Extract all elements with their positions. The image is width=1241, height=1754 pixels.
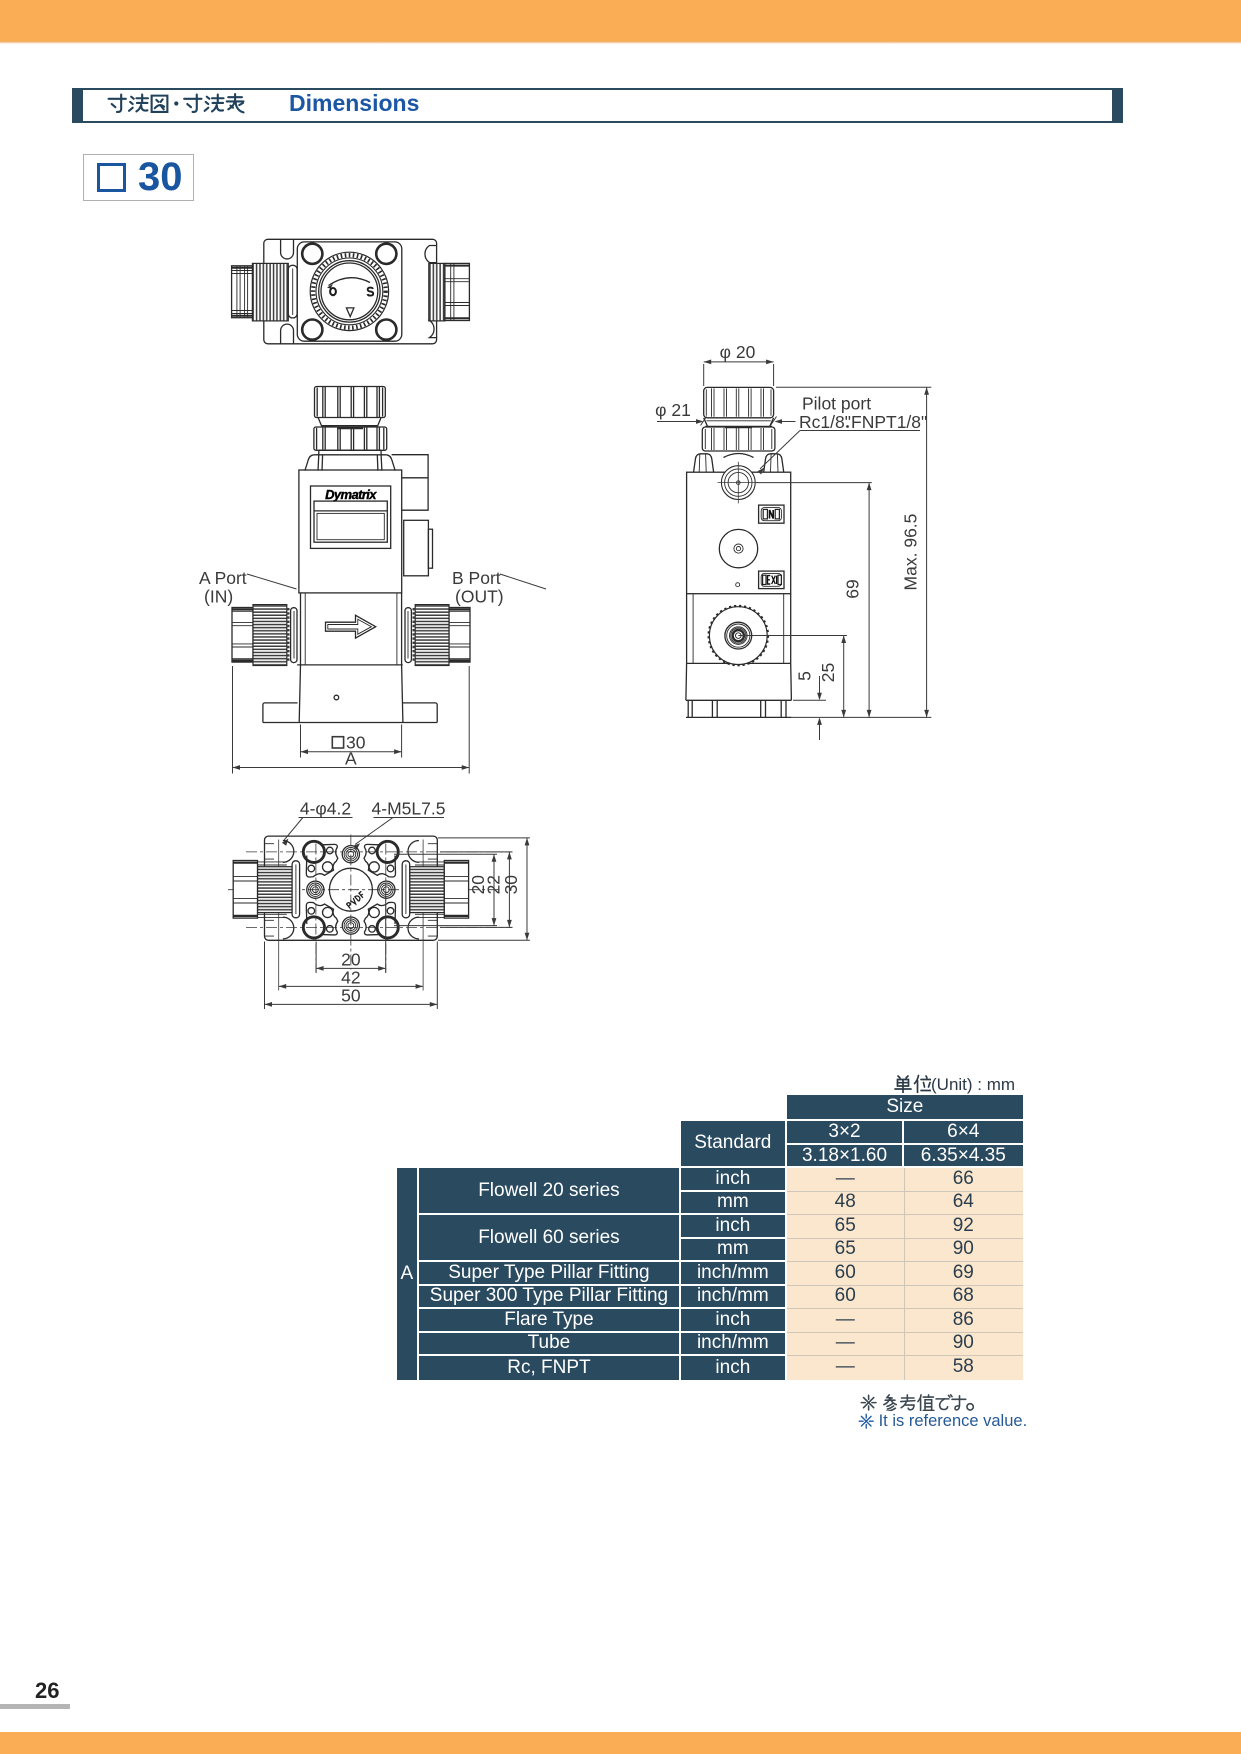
svg-text:Max. 96.5: Max. 96.5 [901, 514, 921, 591]
svg-text:50: 50 [341, 986, 361, 1006]
svg-text:B Port: B Port [452, 568, 501, 588]
svg-text:Pilot port: Pilot port [802, 394, 871, 414]
svg-text:φ 21: φ 21 [655, 400, 691, 420]
svg-text:Rc1/8": Rc1/8" [799, 412, 851, 432]
svg-text:4-M5L7.5: 4-M5L7.5 [372, 799, 446, 819]
svg-text:(IN): (IN) [204, 587, 233, 607]
svg-text:42: 42 [341, 968, 360, 988]
svg-text:(OUT): (OUT) [455, 587, 504, 607]
svg-text:30: 30 [501, 875, 521, 895]
svg-text:69: 69 [843, 579, 863, 598]
svg-text:4-φ4.2: 4-φ4.2 [300, 799, 351, 819]
svg-text:FNPT1/8": FNPT1/8" [851, 412, 927, 432]
svg-text:25: 25 [818, 663, 838, 682]
svg-text:φ 20: φ 20 [720, 342, 756, 362]
svg-text:A: A [345, 749, 357, 769]
svg-text:20: 20 [341, 950, 361, 970]
svg-text:A Port: A Port [199, 568, 247, 588]
svg-text:5: 5 [795, 671, 815, 681]
svg-text:Dymatrix: Dymatrix [325, 487, 377, 502]
